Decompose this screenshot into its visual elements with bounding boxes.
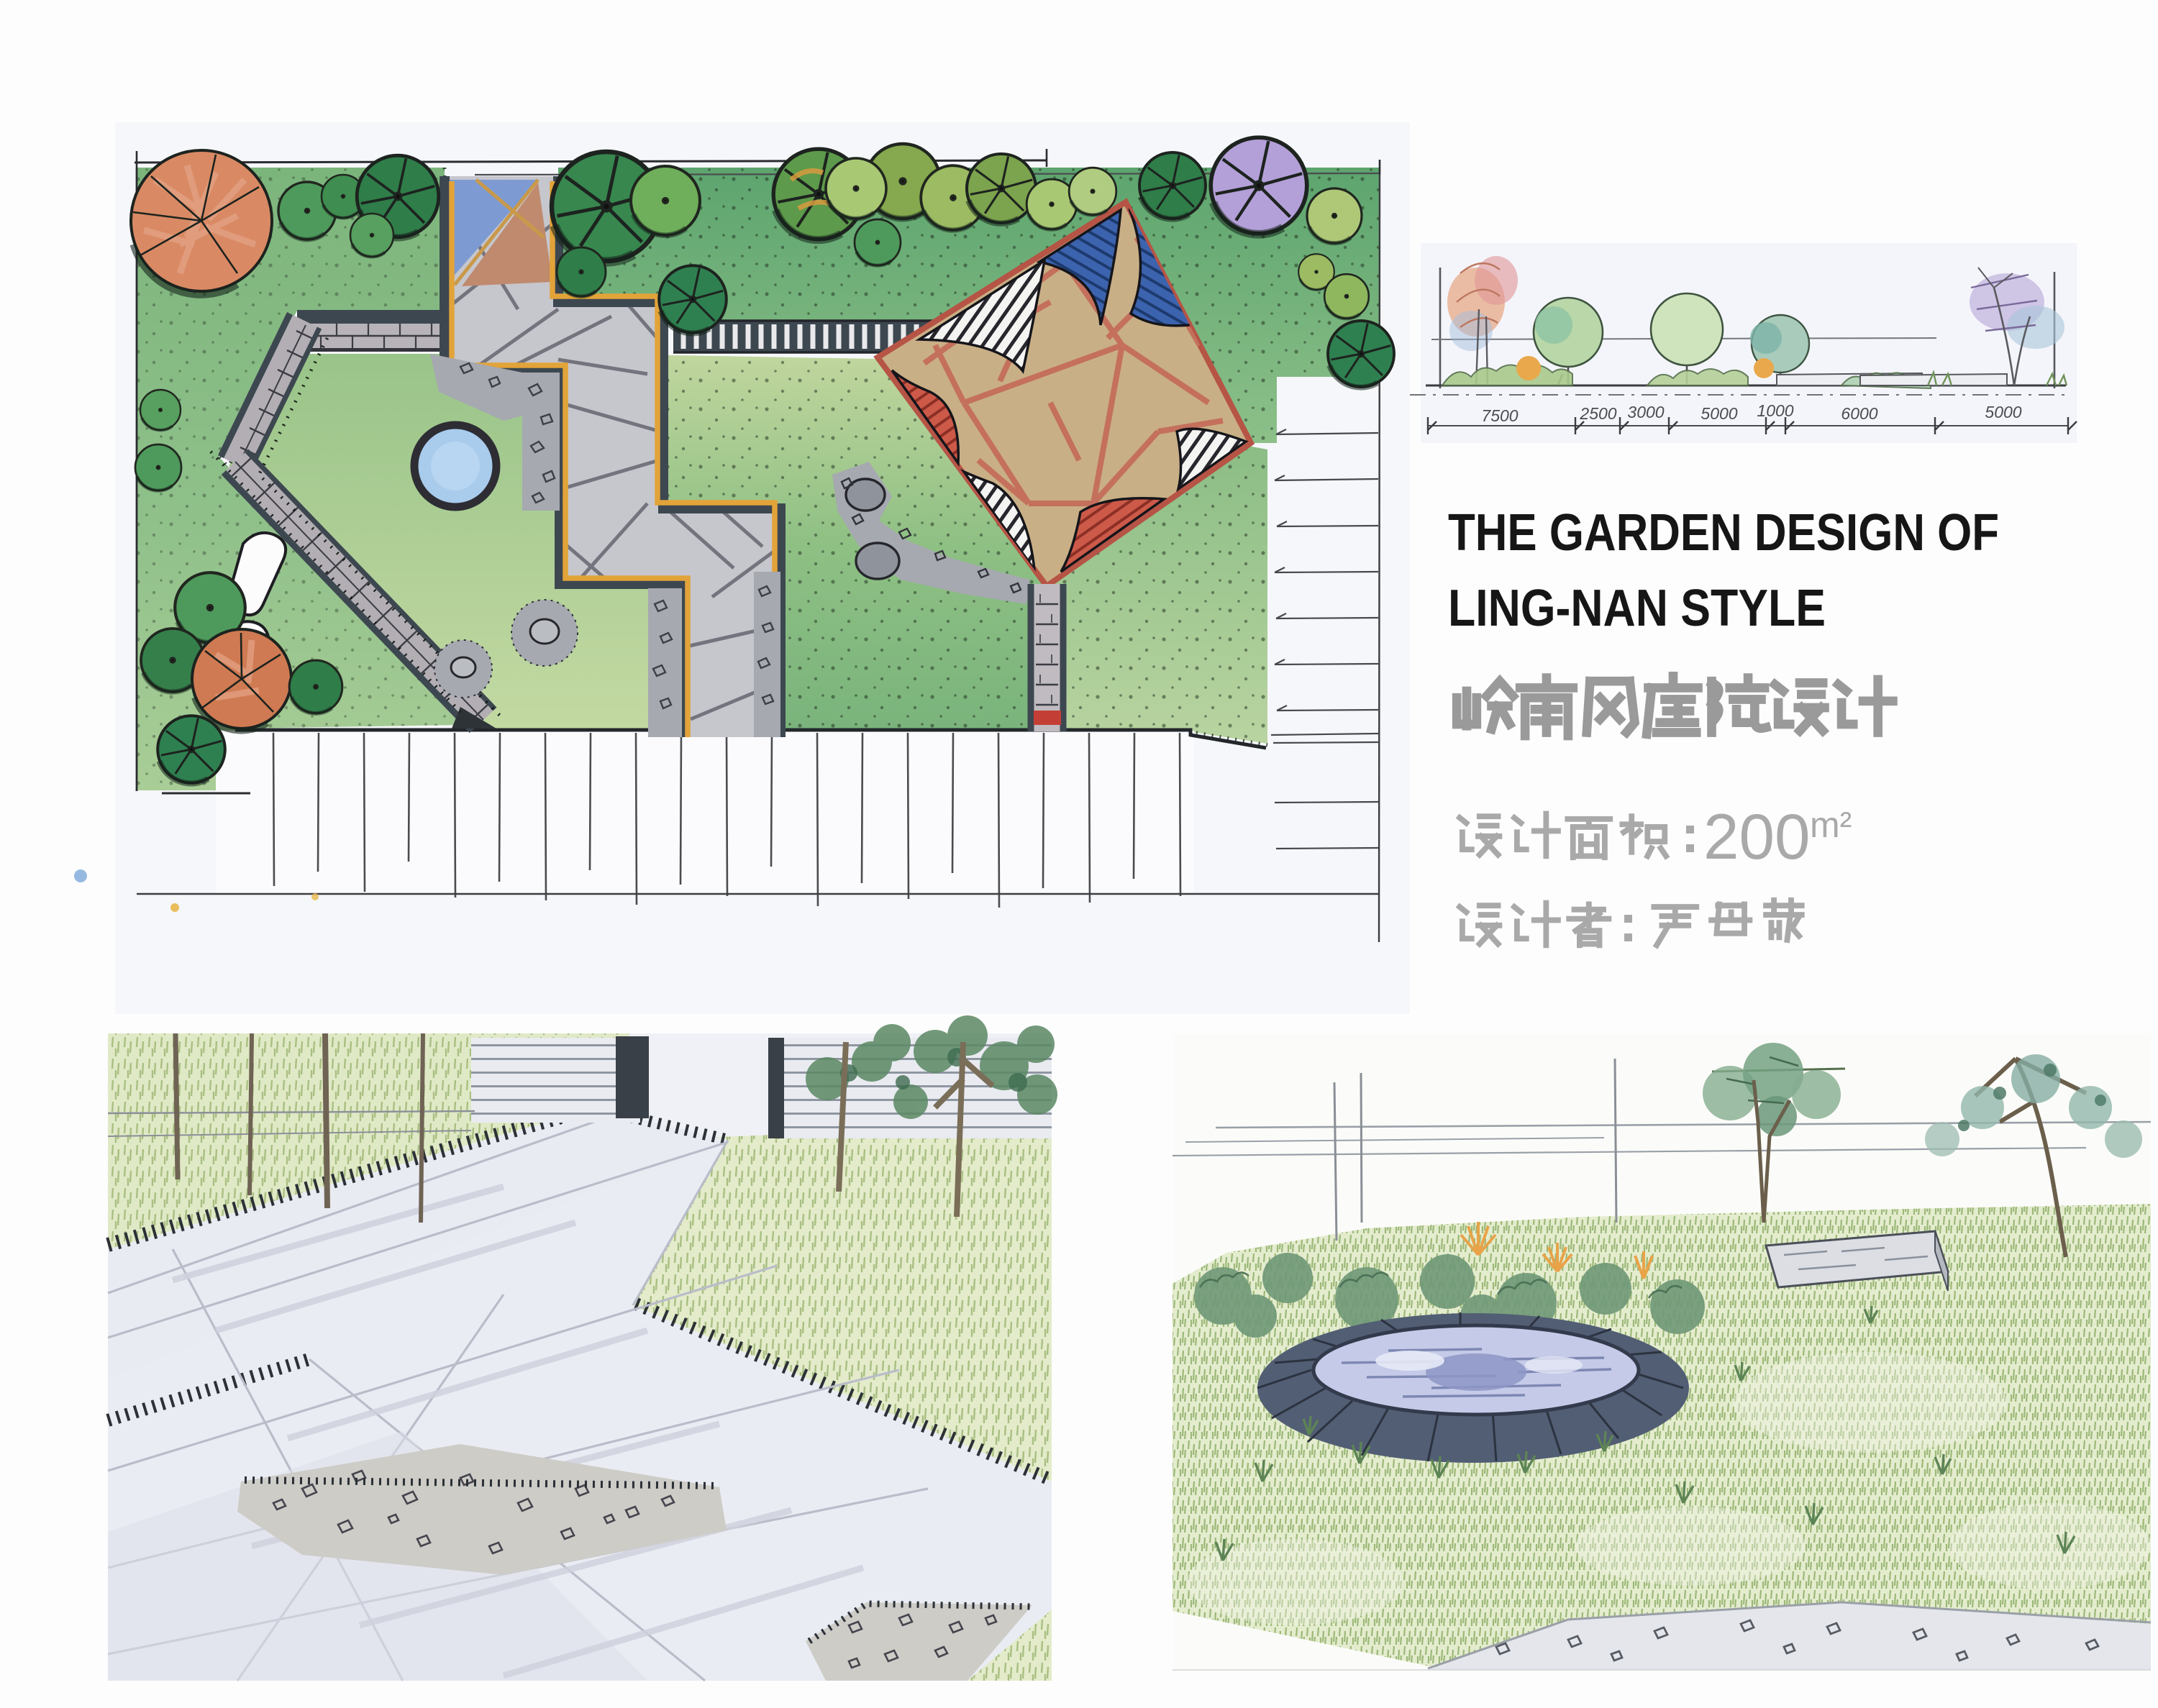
svg-text:5000: 5000 [1985, 403, 2021, 421]
svg-text:m²: m² [1810, 805, 1852, 845]
svg-text:7500: 7500 [1481, 406, 1518, 425]
svg-text:6000: 6000 [1841, 404, 1877, 423]
svg-text:200: 200 [1703, 800, 1811, 872]
svg-text:3000: 3000 [1627, 403, 1664, 421]
svg-text:1000: 1000 [1757, 401, 1793, 420]
svg-text:LING-NAN STYLE: LING-NAN STYLE [1448, 580, 1826, 637]
svg-text:2500: 2500 [1579, 404, 1616, 423]
svg-text:5000: 5000 [1701, 404, 1737, 423]
svg-text:THE GARDEN DESIGN OF: THE GARDEN DESIGN OF [1448, 504, 1999, 562]
